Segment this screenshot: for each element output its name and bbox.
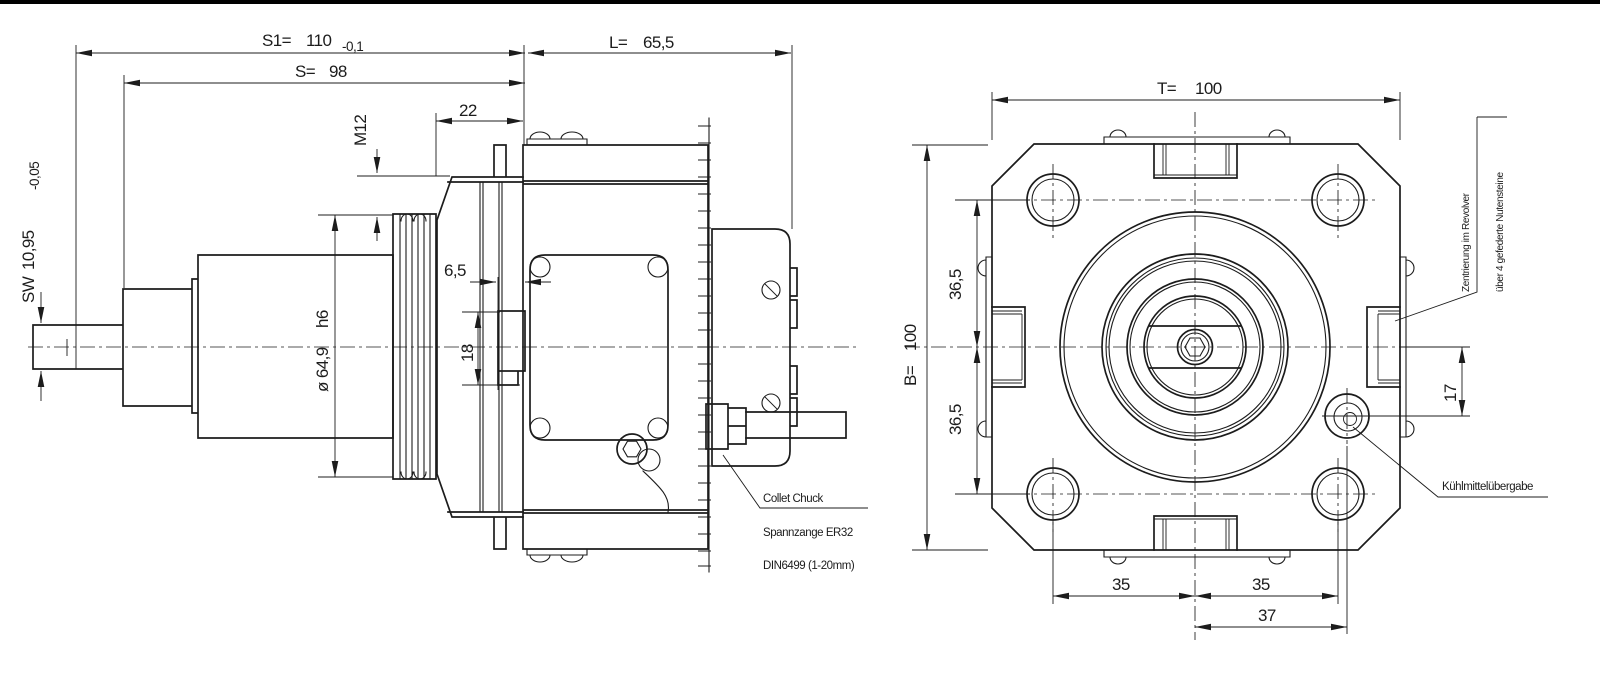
dim-sw-tolerance: -0,05 — [27, 162, 42, 190]
dim-365-lower: 36,5 — [946, 404, 965, 435]
page-top-border — [0, 0, 1600, 4]
note-spannzange: Spannzange ER32 — [763, 527, 853, 539]
dim-s1-label: S1= — [262, 31, 292, 50]
dim-s-label: S= — [295, 62, 316, 81]
dim-l-label: L= — [609, 33, 628, 52]
technical-drawing: S1= 110 -0,1 S= 98 L= 65,5 22 M12 h6 ø 6… — [0, 0, 1600, 683]
dim-l-value: 65,5 — [643, 33, 674, 52]
dim-t-label: T= — [1157, 79, 1177, 98]
note-centering-line1: Zentrierung im Revolver — [1461, 192, 1472, 292]
dim-b-label: B= — [901, 365, 920, 386]
dim-35-right: 35 — [1252, 575, 1270, 594]
dim-s1-value: 110 — [306, 31, 331, 50]
dim-sw-value: 10,95 — [19, 230, 38, 270]
drawing-page: S1= 110 -0,1 S= 98 L= 65,5 22 M12 h6 ø 6… — [0, 0, 1600, 683]
note-din6499: DIN6499 (1-20mm) — [763, 560, 855, 572]
dim-18: 18 — [458, 344, 477, 362]
dim-diameter: ø 64,9 — [313, 347, 332, 392]
note-collet-chuck: Collet Chuck — [763, 493, 823, 505]
dim-b-value: 100 — [901, 324, 920, 351]
note-coolant: Kühlmittelübergabe — [1442, 481, 1533, 493]
dim-m12: M12 — [351, 115, 370, 146]
dim-fit-h6: h6 — [313, 310, 332, 328]
dim-sw-label: SW — [19, 276, 38, 303]
dim-37: 37 — [1258, 606, 1276, 625]
dim-65: 6,5 — [444, 261, 466, 280]
paper — [0, 0, 1600, 683]
dim-365-upper: 36,5 — [946, 269, 965, 300]
dim-s1-tolerance: -0,1 — [342, 39, 363, 54]
dim-t-value: 100 — [1195, 79, 1222, 98]
dim-35-left: 35 — [1112, 575, 1130, 594]
dim-22: 22 — [459, 101, 477, 120]
dim-17: 17 — [1441, 384, 1460, 402]
note-centering-line2: über 4 gefederte Nutensteine — [1495, 171, 1506, 292]
dim-s-value: 98 — [329, 62, 347, 81]
